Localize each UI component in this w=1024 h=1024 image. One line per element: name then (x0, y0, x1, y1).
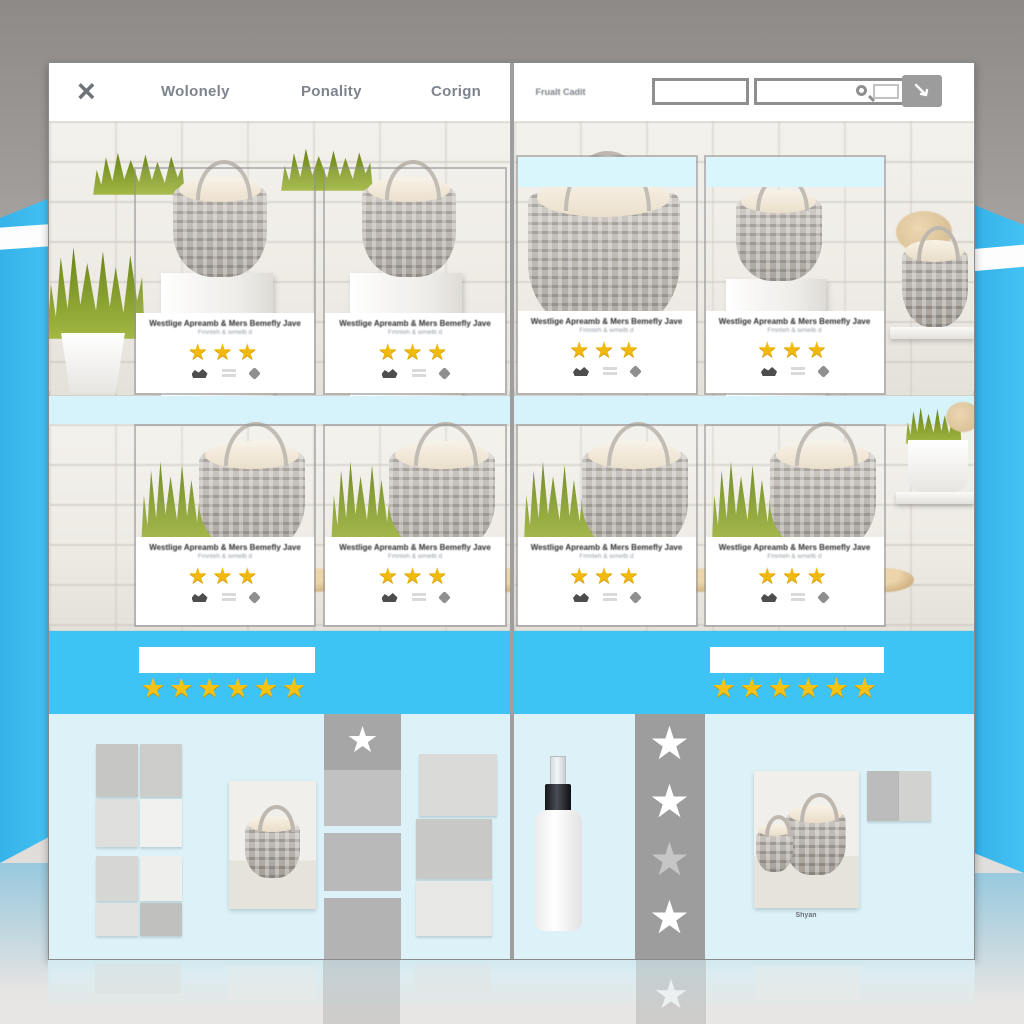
color-swatch[interactable] (96, 744, 138, 797)
review-input[interactable] (710, 647, 884, 673)
tag-icon[interactable] (222, 593, 236, 601)
product-subtitle: Fmnteh & wmelb d (325, 553, 505, 560)
tag-icon[interactable] (603, 593, 617, 601)
product-subtitle: Fmnteh & wmelb d (518, 327, 696, 334)
product-info: Westlige Apreamb & Mers Bemefly Jave Fmn… (136, 313, 314, 393)
detail-panel-left: ★ (49, 714, 510, 959)
share-icon[interactable] (629, 365, 642, 378)
product-card[interactable]: Westlige Apreamb & Mers Bemefly Jave Fmn… (704, 424, 886, 627)
cursor-button[interactable] (902, 75, 942, 107)
thumb-icon[interactable] (573, 592, 589, 602)
detail-panel-right: ★ ★ ★ ★ Shyan (514, 714, 975, 959)
product-info: Westlige Apreamb & Mers Bemefly Jave Fmn… (706, 311, 884, 393)
reflection-gray-column: ★ (636, 960, 706, 1024)
shelf-photo (890, 327, 974, 339)
color-swatch[interactable] (140, 744, 182, 797)
share-icon[interactable] (817, 591, 830, 604)
color-swatch[interactable] (416, 819, 492, 879)
storefront-board: × Wolonely Ponality Corign Westlige Apre (48, 62, 975, 960)
basket-photo (785, 812, 846, 875)
share-icon[interactable] (629, 591, 642, 604)
color-swatch[interactable] (899, 771, 931, 821)
spray-bottle-photo (535, 756, 582, 931)
card-header-bar (706, 157, 884, 187)
color-swatch[interactable] (867, 771, 899, 821)
share-icon[interactable] (248, 591, 261, 604)
product-info: Westlige Apreamb & Mers Bemefly Jave Fmn… (518, 311, 696, 393)
reflection-gray-column (323, 960, 400, 1024)
rating-block[interactable]: ★ (324, 714, 401, 770)
product-title: Westlige Apreamb & Mers Bemefly Jave (136, 543, 314, 552)
rating-column: ★ (324, 714, 401, 959)
nav-item-3[interactable]: Corign (431, 83, 481, 100)
thumb-icon[interactable] (573, 366, 589, 376)
card-action-icons (136, 368, 314, 378)
cursor-arrow-icon (912, 81, 932, 101)
gallery-row-1-left: Westlige Apreamb & Mers Bemefly Jave Fmn… (49, 121, 510, 396)
banner-rating-stars[interactable]: ★★★★★★ (141, 675, 310, 702)
card-action-icons (136, 592, 314, 602)
search-icon[interactable] (856, 85, 867, 96)
color-swatch[interactable] (96, 903, 138, 936)
plant-pot-photo (908, 440, 968, 492)
thumb-icon[interactable] (192, 592, 208, 602)
product-card[interactable]: Westlige Apreamb & Mers Bemefly Jave Fmn… (516, 155, 698, 395)
tag-icon[interactable] (791, 367, 805, 375)
card-action-icons (325, 368, 505, 378)
basket-photo (245, 822, 301, 878)
tag-icon[interactable] (603, 367, 617, 375)
rating-block[interactable] (324, 898, 401, 959)
product-title: Westlige Apreamb & Mers Bemefly Jave (518, 317, 696, 326)
left-page: × Wolonely Ponality Corign Westlige Apre (49, 63, 510, 959)
bottle-body (535, 810, 582, 931)
rating-block[interactable] (324, 770, 401, 826)
color-swatch[interactable] (96, 799, 138, 847)
product-thumbnail[interactable] (754, 771, 859, 908)
shelf-photo (896, 492, 974, 504)
product-title: Westlige Apreamb & Mers Bemefly Jave (325, 543, 505, 552)
board-reflection: ★ (48, 960, 975, 1024)
product-title: Westlige Apreamb & Mers Bemefly Jave (706, 317, 884, 326)
left-wing-reflection (0, 863, 50, 993)
star-icon[interactable]: ★ (635, 778, 705, 824)
product-info: Westlige Apreamb & Mers Bemefly Jave Fmn… (706, 537, 884, 625)
rating-stars[interactable]: ★★★ (325, 565, 505, 587)
card-action-icons (518, 366, 696, 376)
gallery-row-2-right: Westlige Apreamb & Mers Bemefly Jave Fmn… (514, 396, 975, 631)
color-swatch[interactable] (416, 881, 492, 936)
search-input[interactable] (754, 78, 906, 105)
right-wing-stripe (967, 244, 1024, 271)
color-swatch[interactable] (140, 856, 182, 901)
product-info: Westlige Apreamb & Mers Bemefly Jave Fmn… (325, 537, 505, 625)
share-icon[interactable] (438, 591, 451, 604)
share-icon[interactable] (248, 367, 261, 380)
thumb-icon[interactable] (192, 368, 208, 378)
color-swatch[interactable] (140, 799, 182, 847)
basket-photo (902, 249, 968, 327)
right-header: Frualt Cadit (514, 63, 975, 121)
right-page: Frualt Cadit (514, 63, 975, 959)
right-wing-panel (974, 205, 1024, 873)
brand-label: Frualt Cadit (536, 87, 586, 97)
product-title: Westlige Apreamb & Mers Bemefly Jave (325, 319, 505, 328)
tag-icon[interactable] (412, 593, 426, 601)
left-wing-panel (0, 198, 50, 863)
review-banner-left: ★★★★★★ (49, 631, 510, 714)
thumb-icon[interactable] (382, 368, 398, 378)
color-swatch[interactable] (96, 856, 138, 901)
card-action-icons (518, 592, 696, 602)
filter-input[interactable] (652, 78, 749, 105)
close-icon[interactable]: × (77, 71, 96, 111)
star-icon[interactable]: ★ (635, 894, 705, 940)
review-banner-right: ★★★★★★ (514, 631, 975, 714)
left-wing-stripe (0, 224, 55, 250)
card-action-icons (706, 366, 884, 376)
banner-rating-stars[interactable]: ★★★★★★ (712, 675, 881, 702)
product-title: Westlige Apreamb & Mers Bemefly Jave (518, 543, 696, 552)
card-action-icons (325, 592, 505, 602)
rating-column: ★ ★ ★ ★ (635, 714, 705, 959)
rating-stars[interactable]: ★★★ (518, 565, 696, 587)
reflection-thumb (228, 966, 315, 1000)
rating-stars[interactable]: ★★★ (136, 565, 314, 587)
rating-stars[interactable]: ★★★ (136, 341, 314, 363)
reflection-thumb (755, 966, 860, 1000)
tag-icon[interactable] (791, 593, 805, 601)
share-icon[interactable] (438, 367, 451, 380)
product-card[interactable]: Westlige Apreamb & Mers Bemefly Jave Fmn… (134, 424, 316, 627)
product-subtitle: Fmnteh & wmelb d (136, 329, 314, 336)
search-chip (873, 84, 899, 99)
product-subtitle: Fmnteh & wmelb d (706, 327, 884, 334)
product-info: Westlige Apreamb & Mers Bemefly Jave Fmn… (325, 313, 505, 393)
rating-stars[interactable]: ★★★ (518, 339, 696, 361)
rating-block[interactable] (324, 833, 401, 891)
thumbnail-caption: Shyan (754, 912, 859, 919)
thumb-icon[interactable] (761, 366, 777, 376)
star-icon: ★ (324, 722, 401, 758)
rating-stars[interactable]: ★★★ (706, 339, 884, 361)
product-subtitle: Fmnteh & wmelb d (706, 553, 884, 560)
product-title: Westlige Apreamb & Mers Bemefly Jave (136, 319, 314, 328)
product-thumbnail[interactable] (229, 781, 316, 909)
product-info: Westlige Apreamb & Mers Bemefly Jave Fmn… (136, 537, 314, 625)
scene: × Wolonely Ponality Corign Westlige Apre (0, 0, 1024, 1024)
product-card[interactable]: Westlige Apreamb & Mers Bemefly Jave Fmn… (134, 167, 316, 395)
product-card[interactable]: Westlige Apreamb & Mers Bemefly Jave Fmn… (323, 424, 507, 627)
gallery-row-1-right: Westlige Apreamb & Mers Bemefly Jave Fmn… (514, 121, 975, 396)
reflection-swatch (415, 964, 491, 992)
basket-photo (756, 829, 794, 873)
thumb-icon[interactable] (761, 592, 777, 602)
product-subtitle: Fmnteh & wmelb d (325, 329, 505, 336)
rating-stars[interactable]: ★★★ (706, 565, 884, 587)
tag-icon[interactable] (412, 369, 426, 377)
tag-icon[interactable] (222, 369, 236, 377)
right-wing-reflection (974, 873, 1024, 1003)
card-header-bar (518, 157, 696, 187)
color-swatch[interactable] (140, 903, 182, 936)
reflection-swatch (95, 964, 181, 994)
review-input[interactable] (139, 647, 315, 673)
rating-stars[interactable]: ★★★ (325, 341, 505, 363)
product-title: Westlige Apreamb & Mers Bemefly Jave (706, 543, 884, 552)
star-icon[interactable]: ★ (635, 836, 705, 882)
product-card[interactable]: Westlige Apreamb & Mers Bemefly Jave Fmn… (323, 167, 507, 395)
thumb-icon[interactable] (382, 592, 398, 602)
product-subtitle: Fmnteh & wmelb d (518, 553, 696, 560)
cyan-strip (49, 396, 510, 424)
bottle-cap (550, 756, 567, 786)
star-icon[interactable]: ★ (635, 720, 705, 766)
product-subtitle: Fmnteh & wmelb d (136, 553, 314, 560)
gallery-row-2-left: Westlige Apreamb & Mers Bemefly Jave Fmn… (49, 396, 510, 631)
nav-item-2[interactable]: Ponality (301, 83, 362, 100)
cyan-strip (514, 396, 975, 424)
left-header: × Wolonely Ponality Corign (49, 63, 510, 121)
product-card[interactable]: Westlige Apreamb & Mers Bemefly Jave Fmn… (516, 424, 698, 627)
product-card[interactable]: Westlige Apreamb & Mers Bemefly Jave Fmn… (704, 155, 886, 395)
nav-item-1[interactable]: Wolonely (161, 83, 230, 100)
card-action-icons (706, 592, 884, 602)
product-info: Westlige Apreamb & Mers Bemefly Jave Fmn… (518, 537, 696, 625)
bottle-pump (545, 784, 571, 812)
share-icon[interactable] (817, 365, 830, 378)
color-swatch[interactable] (419, 754, 497, 816)
